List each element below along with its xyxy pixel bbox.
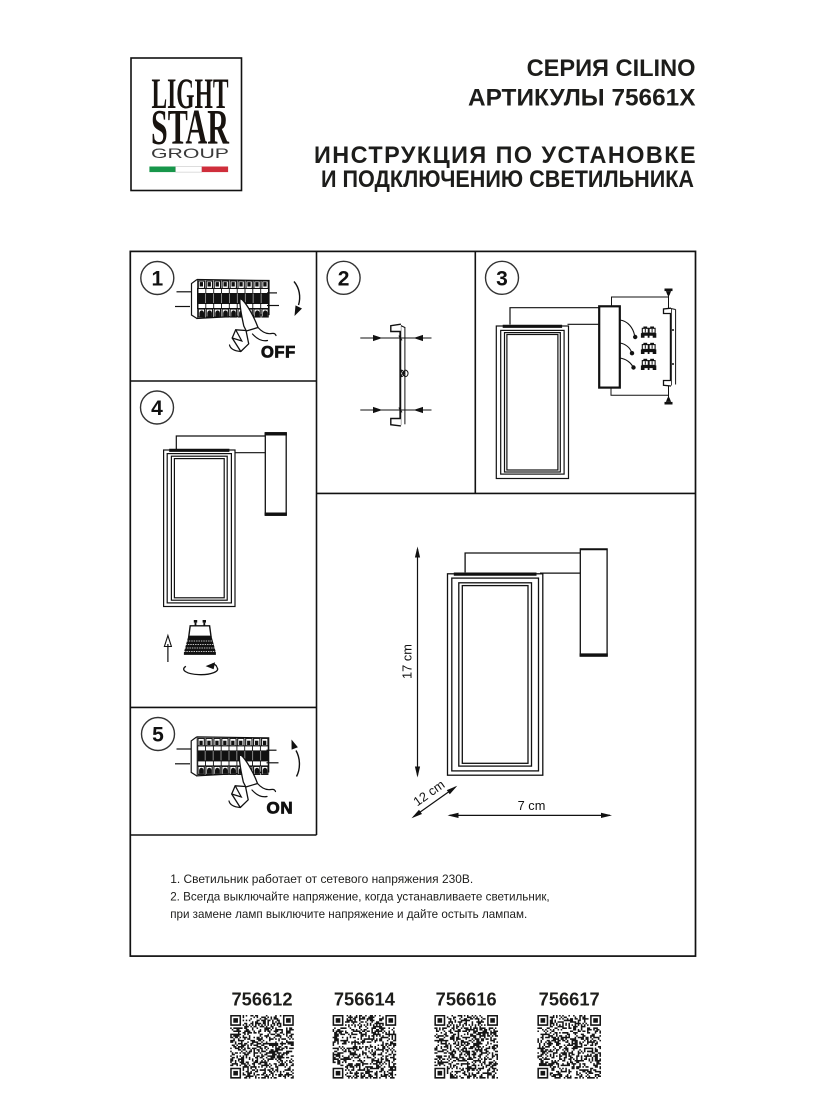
svg-text:12 cm: 12 cm	[410, 777, 447, 809]
svg-text:756612: 756612	[232, 990, 293, 1010]
svg-text:ON: ON	[267, 799, 294, 818]
svg-text:3: 3	[496, 267, 508, 290]
svg-text:ИНСТРУКЦИЯ ПО УСТАНОВКЕ: ИНСТРУКЦИЯ ПО УСТАНОВКЕ	[314, 142, 697, 169]
svg-text:756617: 756617	[539, 990, 600, 1010]
svg-text:756614: 756614	[334, 990, 395, 1010]
svg-text:при замене ламп выключите напр: при замене ламп выключите напряжение и д…	[170, 907, 527, 921]
svg-text:5: 5	[152, 724, 164, 747]
svg-text:7 cm: 7 cm	[518, 798, 546, 813]
svg-text:СЕРИЯ CILINO: СЕРИЯ CILINO	[527, 56, 696, 82]
svg-text:756616: 756616	[436, 990, 497, 1010]
svg-text:OFF: OFF	[261, 344, 296, 362]
svg-text:17 cm: 17 cm	[399, 644, 414, 679]
svg-text:И ПОДКЛЮЧЕНИЮ СВЕТИЛЬНИКА: И ПОДКЛЮЧЕНИЮ СВЕТИЛЬНИКА	[321, 166, 694, 193]
svg-text:4: 4	[151, 397, 163, 420]
svg-text:2: 2	[338, 267, 350, 290]
svg-text:1. Светильник работает от сете: 1. Светильник работает от сетевого напря…	[170, 872, 473, 886]
svg-text:2. Всегда выключайте напряжени: 2. Всегда выключайте напряжение, когда у…	[170, 890, 550, 904]
svg-text:АРТИКУЛЫ 75661X: АРТИКУЛЫ 75661X	[468, 86, 696, 112]
svg-text:GROUP: GROUP	[151, 145, 229, 161]
svg-text:1: 1	[151, 268, 163, 291]
